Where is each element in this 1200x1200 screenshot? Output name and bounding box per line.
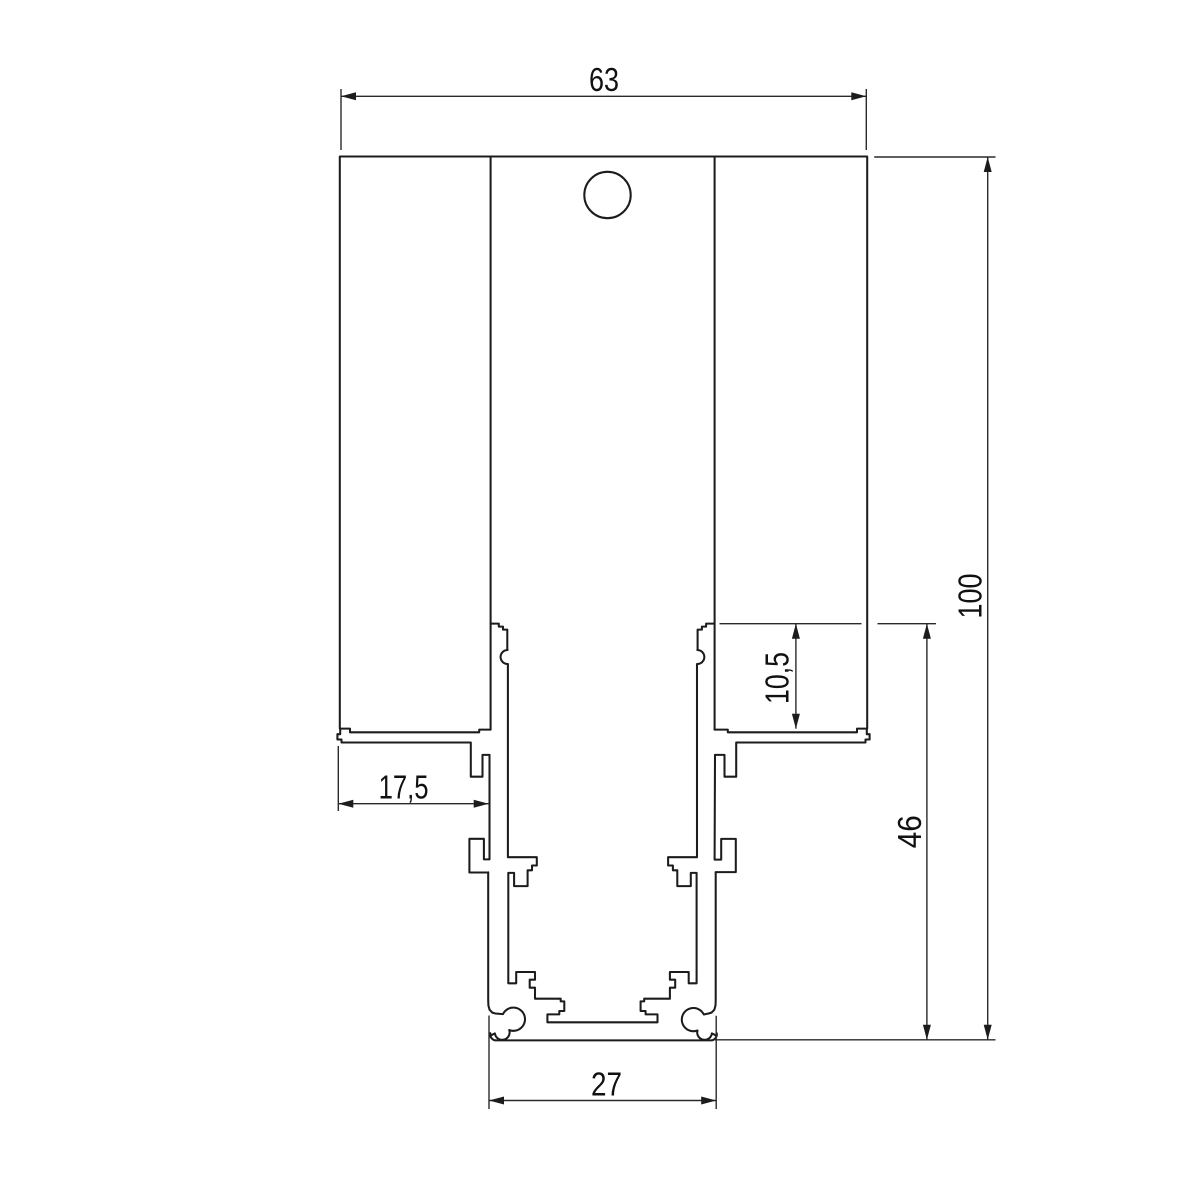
svg-text:46: 46 (891, 815, 928, 848)
svg-text:17,5: 17,5 (379, 769, 429, 806)
svg-text:100: 100 (952, 574, 989, 619)
svg-text:10,5: 10,5 (759, 652, 796, 704)
svg-text:63: 63 (589, 61, 619, 98)
svg-text:27: 27 (591, 1065, 622, 1102)
